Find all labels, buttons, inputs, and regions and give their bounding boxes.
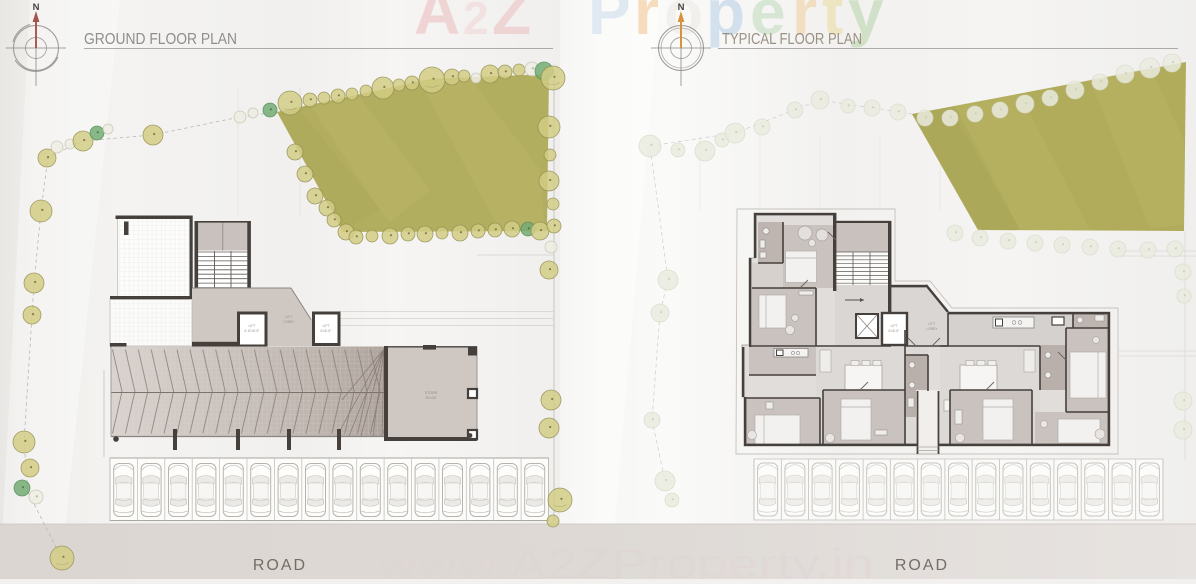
svg-text:N: N: [33, 2, 40, 13]
svg-text:6'-8"x5'-8": 6'-8"x5'-8": [244, 329, 260, 333]
svg-text:LIFT: LIFT: [286, 315, 293, 319]
svg-text:LIFT: LIFT: [323, 324, 330, 328]
svg-text:A: A: [414, 0, 460, 48]
svg-text:LOBBY: LOBBY: [283, 320, 295, 324]
svg-text:2: 2: [463, 0, 489, 44]
svg-text:r: r: [634, 0, 659, 48]
svg-text:LIFT: LIFT: [249, 324, 256, 328]
svg-text:STORE: STORE: [425, 391, 438, 395]
svg-text:GROUND FLOOR PLAN: GROUND FLOOR PLAN: [84, 31, 237, 48]
svg-text:Z: Z: [492, 0, 531, 48]
svg-text:ROAD: ROAD: [895, 557, 949, 574]
svg-text:29'x30': 29'x30': [425, 396, 436, 400]
svg-text:6'x5'-8": 6'x5'-8": [889, 329, 901, 333]
svg-text:6'x5'-8": 6'x5'-8": [321, 329, 333, 333]
svg-text:LOBBY: LOBBY: [926, 327, 938, 331]
svg-text:N: N: [678, 2, 685, 13]
svg-text:www.A2ZProperty.in: www.A2ZProperty.in: [377, 540, 874, 579]
svg-text:LIFT: LIFT: [891, 324, 898, 328]
svg-text:LIFT: LIFT: [929, 322, 936, 326]
svg-text:TYPICAL FLOOR PLAN: TYPICAL FLOOR PLAN: [722, 31, 862, 48]
svg-text:ROAD: ROAD: [253, 557, 307, 574]
svg-text:P: P: [588, 0, 631, 48]
